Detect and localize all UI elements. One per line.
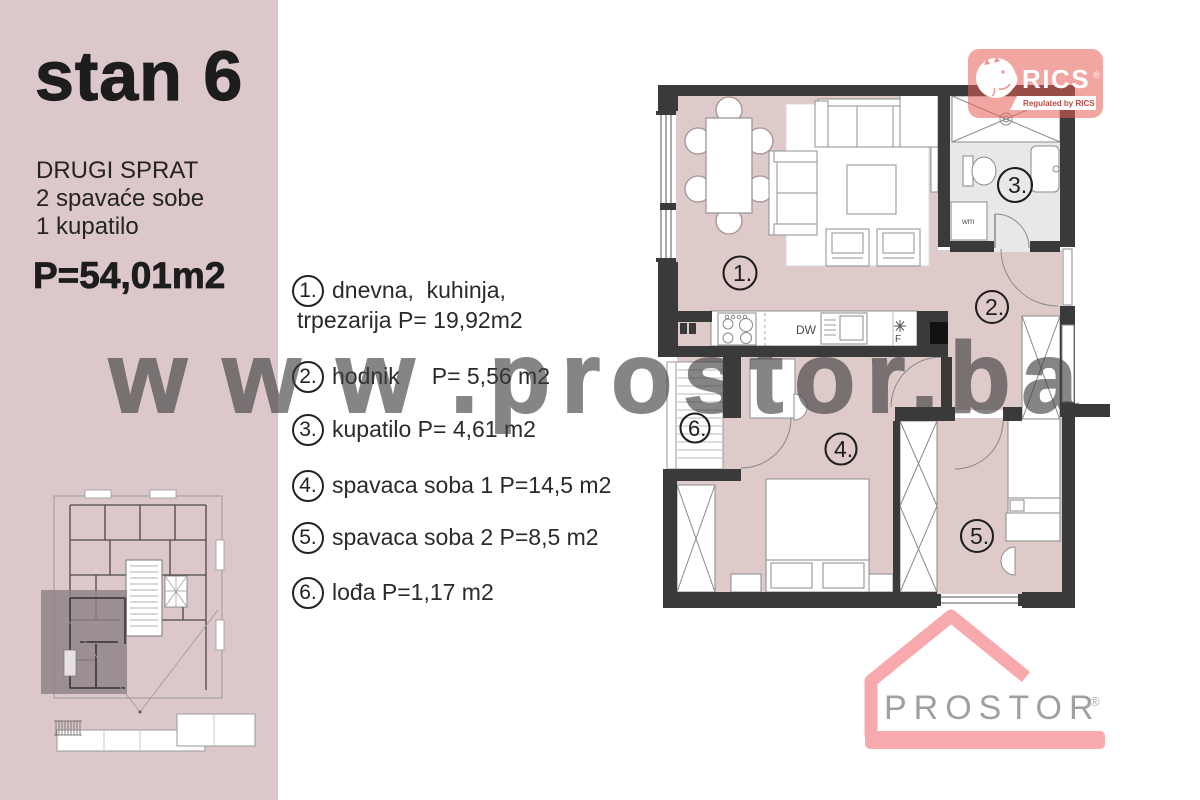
svg-text:®: ® xyxy=(1090,694,1100,709)
svg-text:PROSTOR: PROSTOR xyxy=(884,689,1101,727)
svg-text:Regulated by RICS: Regulated by RICS xyxy=(1023,99,1095,108)
svg-text:3.: 3. xyxy=(1008,172,1027,198)
svg-text:®: ® xyxy=(1093,70,1100,80)
svg-text:4.: 4. xyxy=(834,436,853,462)
svg-text:wm: wm xyxy=(961,217,975,226)
svg-text:5.: 5. xyxy=(970,523,989,549)
svg-text:2.: 2. xyxy=(985,294,1004,320)
svg-text:1.: 1. xyxy=(733,260,752,286)
svg-text:RICS: RICS xyxy=(1022,64,1090,94)
